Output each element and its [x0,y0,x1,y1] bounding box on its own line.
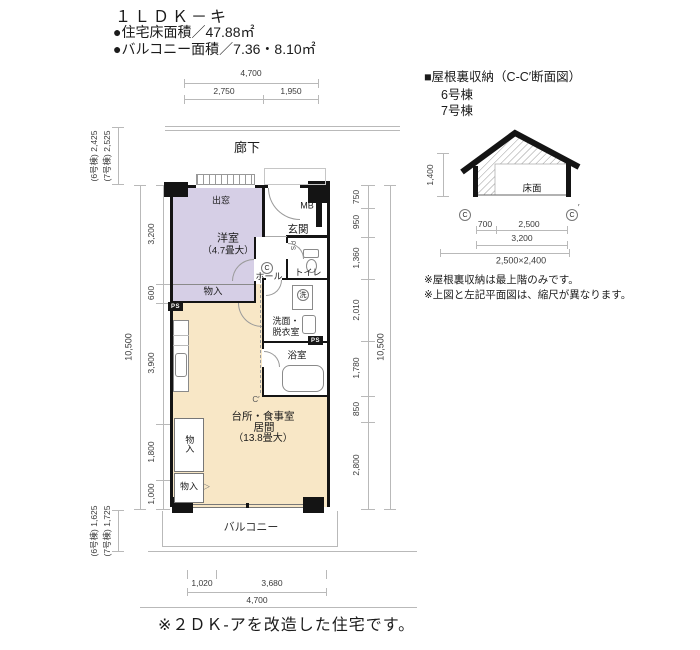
entrance-porch-outline [264,168,326,185]
balcony-rail [162,546,338,547]
dim-tick [567,241,568,249]
dim-left-total: 10,500 [125,333,134,361]
dim-top-seg-2: 1,950 [280,87,301,96]
floorplan-page: １ＬＤＫ－キ ●住宅床面積／47.88㎡ ●バルコニー面積／7.36・8.10㎡… [0,0,700,650]
dim-tick [384,509,396,510]
dim-line [187,592,327,593]
section-wall-right [566,162,571,197]
wall-segment [262,367,264,397]
wall-segment [262,395,327,397]
dim-left-outer-bottom-2: (7号棟) 1,725 [103,505,112,556]
wall-segment [286,259,288,278]
dim-tick [156,284,170,285]
dim-line [368,185,369,510]
dim-bottom-seg-1: 1,020 [191,579,212,588]
dim-tick [134,509,146,510]
ps-box: PS [308,336,323,345]
closet-label-vertical: 物入 [184,435,195,453]
entrance-label: 玄関 [288,224,309,237]
attic-section-diagram [437,128,587,203]
dim-tick [567,226,568,234]
ldk-size-label: （13.8畳大） [233,433,292,445]
corridor-label: 廊下 [234,140,260,156]
closet-label: 物入 [203,286,222,297]
dim-left-seg-4: 1,800 [147,441,156,462]
dim-line [476,245,568,246]
dim-tick [361,509,375,510]
section-building-7: 7号棟 [441,100,473,119]
section-c-prime-marker: C [566,209,578,221]
washer-label: 洗 [297,289,309,301]
bath-label: 浴室 [287,350,306,361]
section-height-dim: 1,400 [426,164,435,185]
dim-tick [187,570,188,579]
dim-left-outer-top-1: (6号棟) 2,425 [90,130,99,181]
wall-segment [327,185,330,507]
dim-left-seg-3: 3,900 [147,352,156,373]
pillar [303,497,324,513]
section-heading: ■屋根裏収納（C-C′断面図） [424,66,581,85]
c-prime-marker: C′ [252,396,259,404]
section-note-1: ※屋根裏収納は最上階のみです。 [424,272,579,287]
dim-line [118,510,119,552]
dim-tick [318,79,319,88]
dim-tick [326,588,327,596]
dim-tick [112,510,124,511]
hall-label: ホール [255,272,282,283]
bay-window [196,174,255,185]
corridor-line [165,130,400,131]
washroom-label: 洗面・ 脱衣室 [272,316,299,338]
dim-line [476,230,568,231]
dim-right-seg-1: 750 [352,190,361,204]
dim-tick [361,422,375,423]
bay-window-label: 出窓 [212,196,230,207]
dim-tick [437,196,449,197]
door-arc-bath [264,351,280,367]
door-arc-toilet [288,243,304,259]
balcony-rail [162,511,163,546]
balcony-label: バルコニー [224,521,279,534]
western-room-size: （4.7畳大） [202,245,253,256]
toilet-tank [303,249,319,258]
section-dim-2500: 2,500 [518,220,539,229]
dim-tick [361,341,375,342]
dim-right-seg-4: 2,010 [352,299,361,320]
toilet-label: トイレ [294,268,321,279]
section-floor-label: 床面 [522,183,541,194]
dim-line [163,185,164,510]
western-room-label: 洋室 [217,232,239,245]
dim-tick [476,241,477,249]
washroom-sink [302,315,316,334]
dim-tick [156,480,170,481]
section-wall-left [473,166,478,197]
balcony-window-mullion [246,503,249,508]
dim-tick [361,396,375,397]
dim-tick [112,551,124,552]
dim-line [390,185,391,510]
closet-top-line [173,284,254,285]
dim-tick [437,153,449,154]
dim-tick [361,208,375,209]
pillar [164,182,188,197]
dim-tick [112,184,124,185]
section-cut-line [260,275,261,393]
dim-tick [361,279,375,280]
dim-left-outer-top-2: (7号棟) 2,525 [103,130,112,181]
dim-right-seg-2: 950 [352,215,361,229]
dim-left-seg-2: 600 [147,286,156,300]
dim-line [440,253,570,254]
ps-box: PS [168,302,183,311]
dim-left-seg-1: 3,200 [147,223,156,244]
dim-tick [112,127,124,128]
balcony-area-label: ●バルコニー面積／7.36・8.10㎡ [113,39,316,59]
dim-line [184,83,319,84]
dim-right-seg-5: 1,780 [352,357,361,378]
closet-door-mark: ▷ [203,481,210,492]
floor-plan: 洗 ▷ C C′ PS PS PS 出窓 洋室 （4.7畳大） 玄関 MB ホー… [170,185,330,510]
dim-bottom-seg-2: 3,680 [261,579,282,588]
dim-tick [156,509,170,510]
dim-line [140,607,417,608]
dim-tick [156,424,170,425]
dim-tick [476,226,477,234]
dim-tick [134,185,146,186]
dim-tick [326,570,327,579]
section-prime-mark: ′ [578,204,580,212]
dim-line [140,185,141,510]
section-dim-overall: 2,500×2,400 [496,257,546,266]
footer-note: ※２ＤＫ-アを改造した住宅です。 [158,611,415,635]
dim-tick [361,237,375,238]
dim-bottom-total: 4,700 [246,596,267,605]
section-note-2: ※上図と左記平面図は、縮尺が異なります。 [424,287,631,302]
dim-left-seg-5: 1,000 [147,483,156,504]
section-dim-3200: 3,200 [511,234,532,243]
dim-line [118,127,119,185]
dim-right-total: 10,500 [377,333,386,361]
dim-tick [318,95,319,104]
bathtub [282,365,324,392]
dim-right-seg-3: 1,360 [352,247,361,268]
closet-label: 物入 [180,482,198,493]
dim-tick [184,79,185,88]
dim-tick [184,95,185,104]
entrance-step-line [265,236,287,237]
dim-right-seg-6: 850 [352,402,361,416]
kitchen-sink [175,353,187,377]
mb-label: MB [300,201,314,212]
door-arc-entrance [268,188,300,220]
dim-tick [263,95,264,104]
balcony-rail [337,511,338,546]
dim-top-seg-1: 2,750 [213,87,234,96]
dim-tick [496,226,497,234]
wall-segment [254,237,256,259]
dim-line [443,153,444,197]
balcony-rail [148,551,417,552]
dim-tick [569,249,570,257]
dim-top-total: 4,700 [240,69,261,78]
dim-left-outer-bottom-1: (6号棟) 1,625 [90,505,99,556]
dim-line [184,99,319,100]
dim-tick [187,588,188,596]
kitchen-counter-line [173,345,189,346]
dim-right-seg-7: 2,800 [352,454,361,475]
dim-tick [384,185,396,186]
wall-segment [262,188,265,237]
wall-segment [254,281,256,303]
section-c-marker: C [459,209,471,221]
corridor-line [165,126,400,127]
section-dim-700: 700 [478,220,492,229]
dim-tick [440,249,441,257]
kitchen-counter-line [173,335,189,336]
dim-tick [361,185,375,186]
wall-segment [262,280,264,349]
dim-tick [216,570,217,579]
